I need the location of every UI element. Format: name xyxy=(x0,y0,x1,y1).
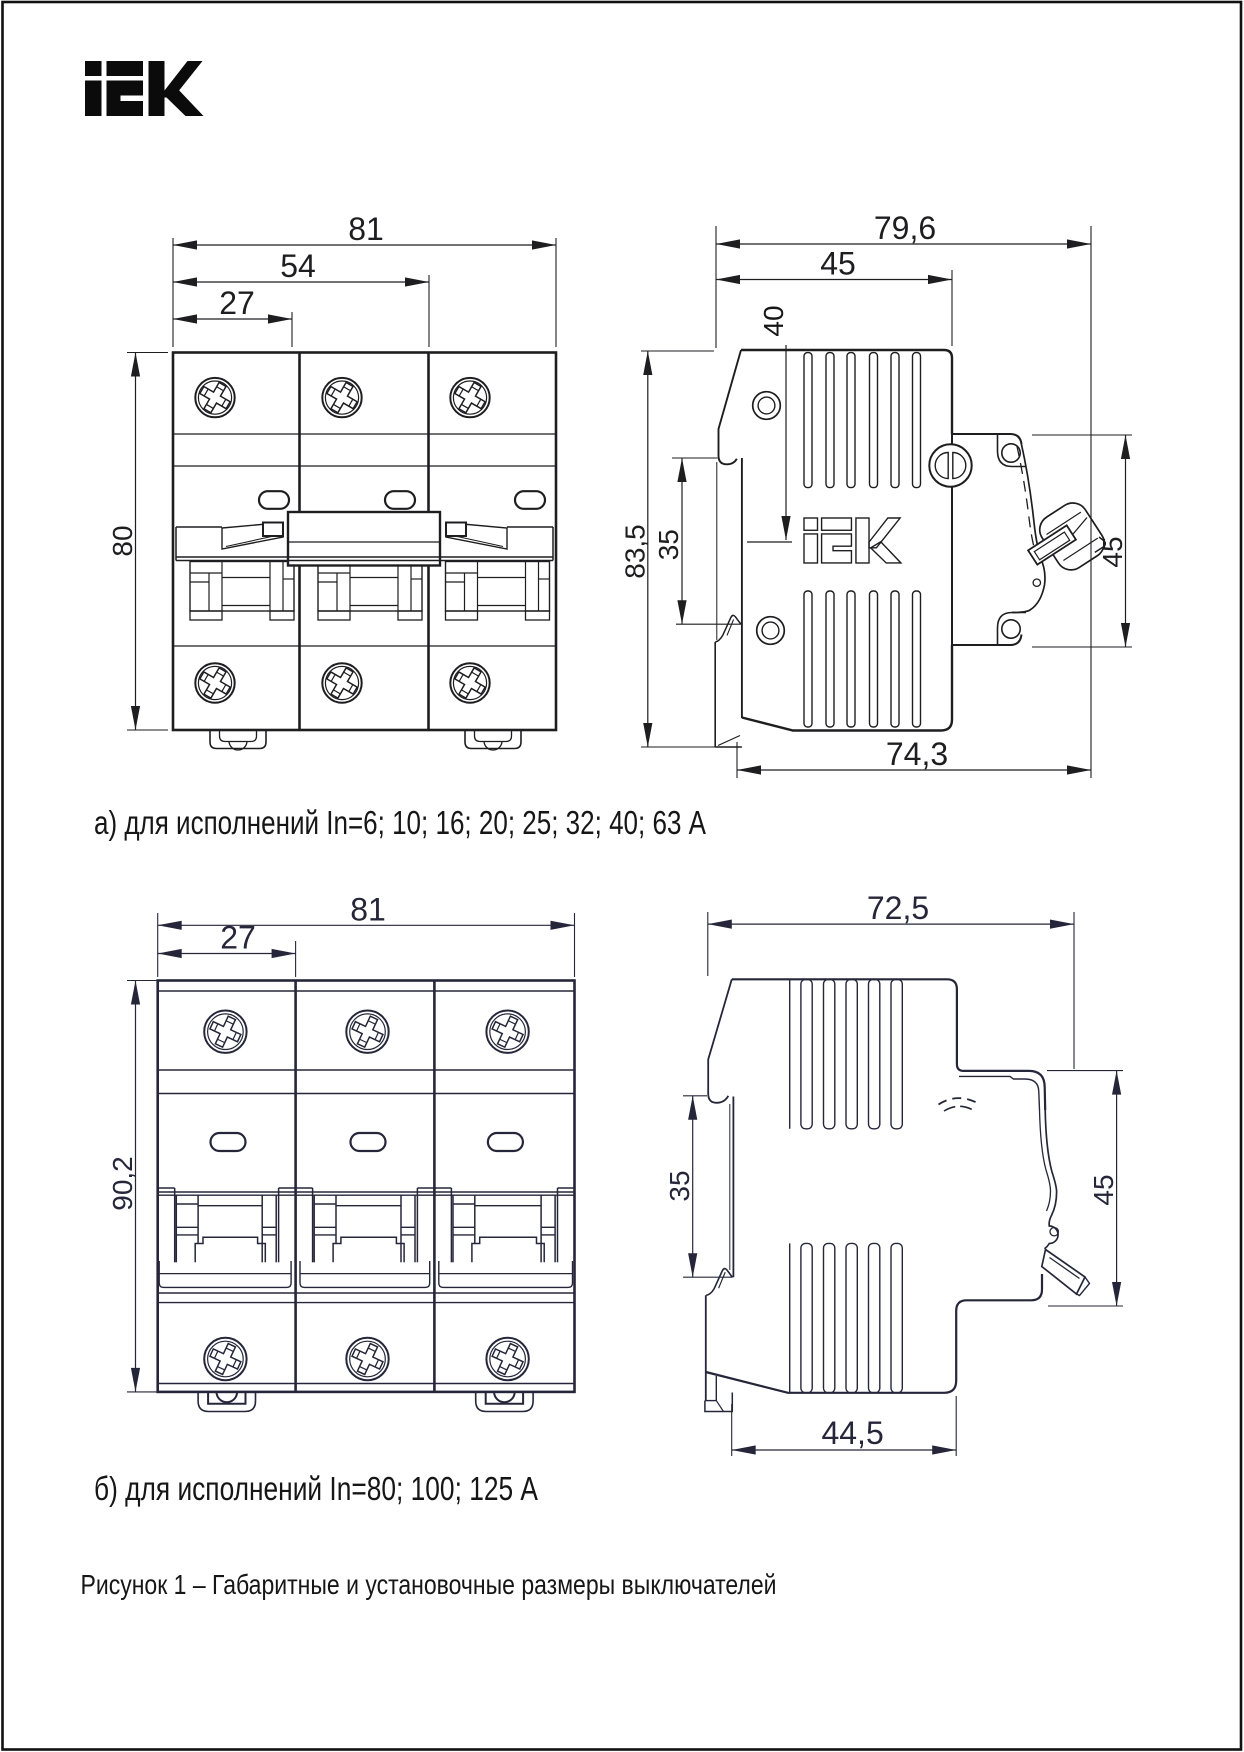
svg-text:45: 45 xyxy=(1088,1174,1119,1205)
svg-text:45: 45 xyxy=(1097,536,1128,567)
svg-text:45: 45 xyxy=(820,246,856,282)
svg-text:79,6: 79,6 xyxy=(874,210,936,246)
svg-text:81: 81 xyxy=(350,891,386,927)
svg-text:54: 54 xyxy=(280,248,316,284)
svg-text:35: 35 xyxy=(664,1170,695,1201)
svg-text:35: 35 xyxy=(653,529,684,560)
svg-text:27: 27 xyxy=(219,285,255,321)
svg-text:а) для исполнений In=6; 10; 16: а) для исполнений In=6; 10; 16; 20; 25; … xyxy=(94,804,706,841)
svg-text:80: 80 xyxy=(107,525,138,556)
svg-text:40: 40 xyxy=(758,305,789,336)
svg-text:74,3: 74,3 xyxy=(886,736,948,772)
svg-text:44,5: 44,5 xyxy=(821,1415,883,1451)
svg-text:б) для исполнений In=80; 100;: б) для исполнений In=80; 100; 125 А xyxy=(94,1470,538,1507)
svg-text:90,2: 90,2 xyxy=(107,1156,138,1211)
svg-text:81: 81 xyxy=(348,211,384,247)
svg-text:27: 27 xyxy=(220,920,256,956)
svg-text:72,5: 72,5 xyxy=(867,890,929,926)
svg-text:Рисунок 1 – Габаритные и устан: Рисунок 1 – Габаритные и установочные ра… xyxy=(81,1569,777,1600)
svg-text:83,5: 83,5 xyxy=(620,524,651,579)
